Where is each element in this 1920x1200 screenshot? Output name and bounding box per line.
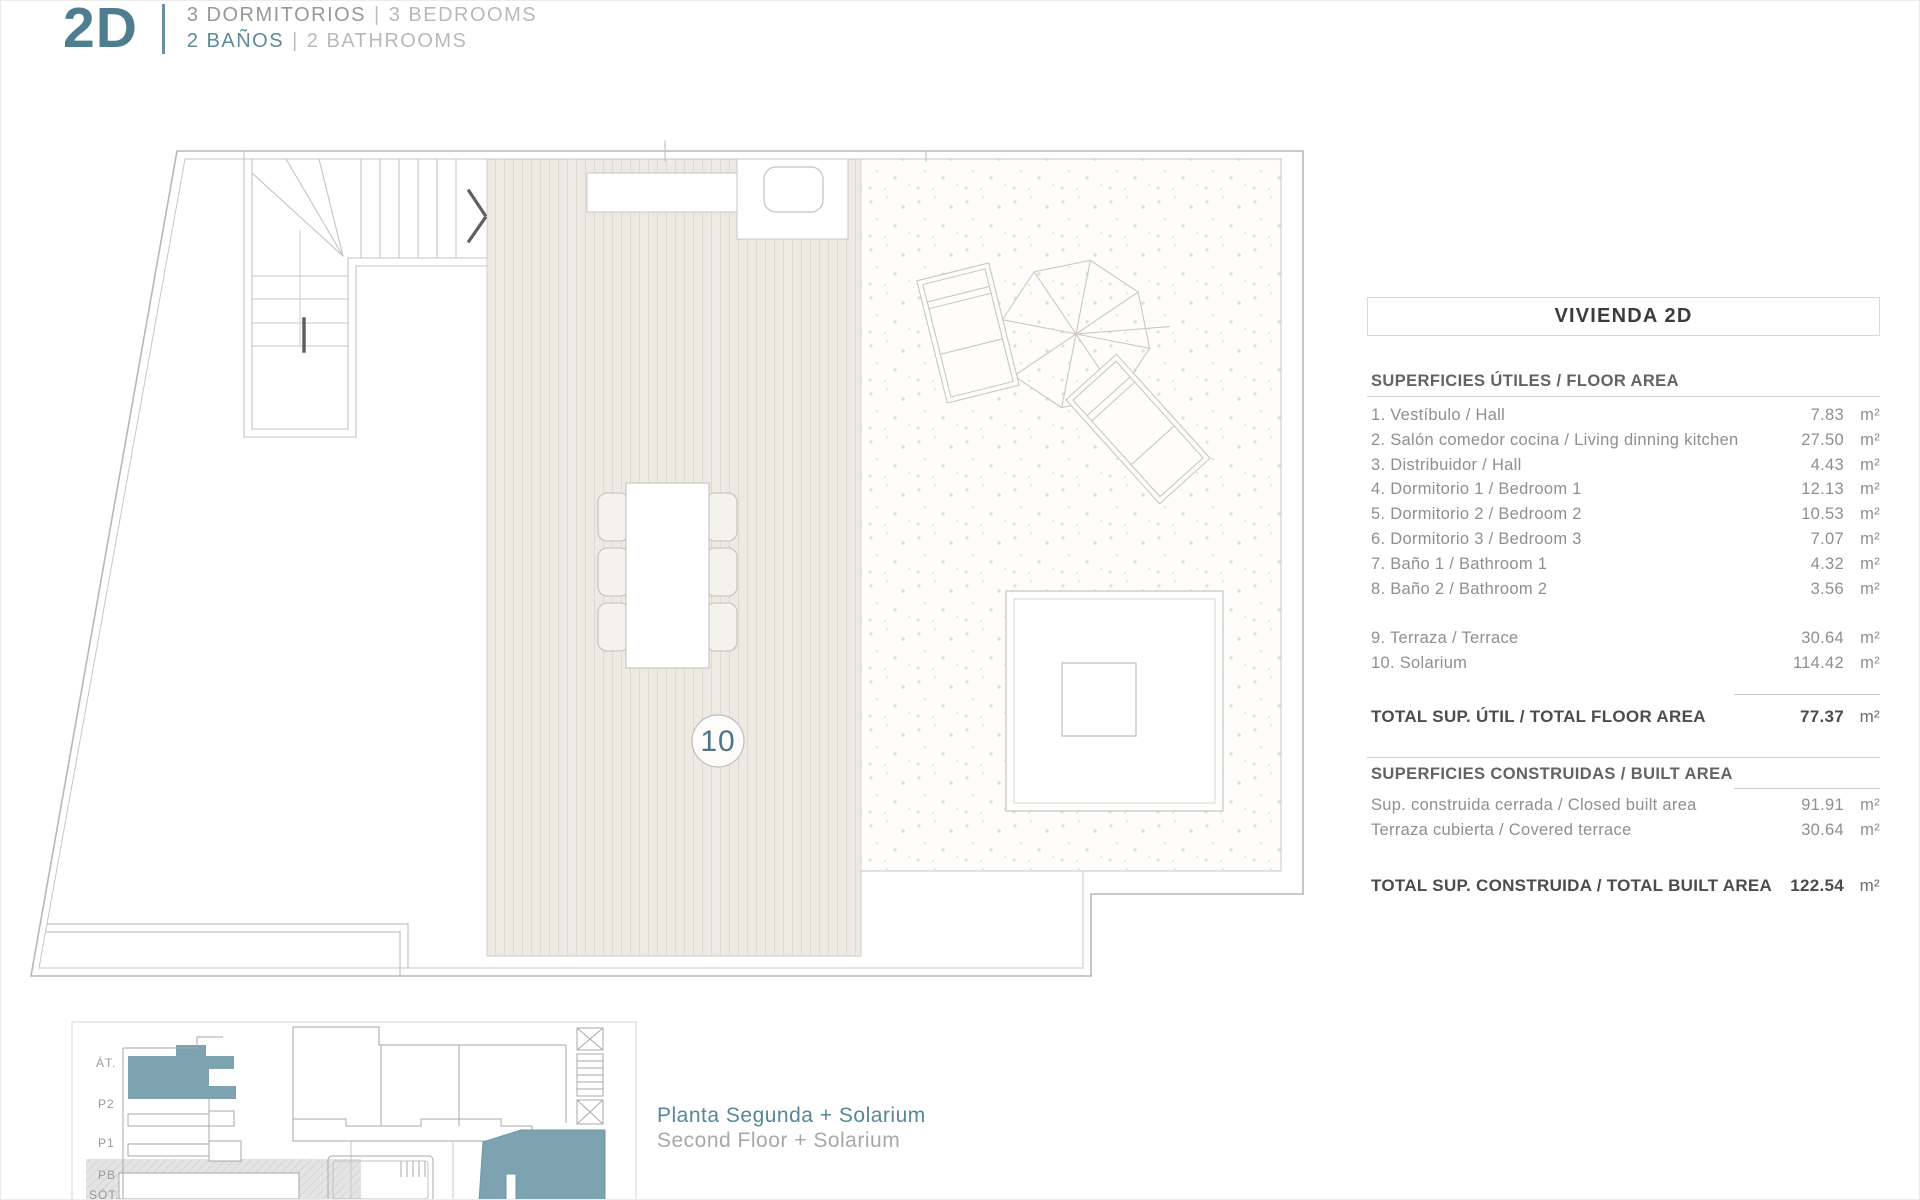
row-label: 9. Terraza / Terrace <box>1367 626 1774 651</box>
total-label: TOTAL SUP. ÚTIL / TOTAL FLOOR AREA <box>1367 707 1774 727</box>
caption-es: Planta Segunda + Solarium <box>657 1103 926 1128</box>
row-label: 6. Dormitorio 3 / Bedroom 3 <box>1367 527 1774 552</box>
room-number-badge: 10 <box>692 715 744 767</box>
row-unit: m² <box>1844 453 1880 478</box>
total-value: 122.54 <box>1774 876 1844 896</box>
row-unit: m² <box>1844 502 1880 527</box>
total-unit: m² <box>1844 707 1880 727</box>
built-area-total: TOTAL SUP. CONSTRUIDA / TOTAL BUILT AREA… <box>1367 876 1880 896</box>
row-label: 8. Baño 2 / Bathroom 2 <box>1367 577 1774 602</box>
table-row: 3. Distribuidor / Hall 4.43 m² <box>1367 453 1880 478</box>
table-row: 4. Dormitorio 1 / Bedroom 1 12.13 m² <box>1367 477 1880 502</box>
main-plan: 10 <box>31 141 1303 976</box>
area-table: VIVIENDA 2D SUPERFICIES ÚTILES / FLOOR A… <box>1367 297 1880 896</box>
sink-basin <box>764 167 823 212</box>
total-label: TOTAL SUP. CONSTRUIDA / TOTAL BUILT AREA <box>1367 876 1774 896</box>
bedrooms-label-es: 3 DORMITORIOS <box>187 4 366 26</box>
table-row: Sup. construida cerrada / Closed built a… <box>1367 793 1880 818</box>
bathrooms-label-en: 2 BATHROOMS <box>307 30 468 52</box>
built-area-section: SUPERFICIES CONSTRUIDAS / BUILT AREA Sup… <box>1367 757 1880 896</box>
row-label: 7. Baño 1 / Bathroom 1 <box>1367 552 1774 577</box>
row-label: Sup. construida cerrada / Closed built a… <box>1367 793 1774 818</box>
row-unit: m² <box>1844 651 1880 676</box>
row-value: 4.43 <box>1774 453 1844 478</box>
skylight <box>1006 591 1223 811</box>
row-unit: m² <box>1844 626 1880 651</box>
outdoor-rows: 9. Terraza / Terrace 30.64 m² 10. Solari… <box>1367 626 1880 676</box>
row-value: 27.50 <box>1774 428 1844 453</box>
row-unit: m² <box>1844 403 1880 428</box>
built-rule <box>1734 788 1880 789</box>
row-label: 3. Distribuidor / Hall <box>1367 453 1774 478</box>
row-value: 30.64 <box>1774 818 1844 843</box>
row-unit: m² <box>1844 818 1880 843</box>
row-value: 10.53 <box>1774 502 1844 527</box>
row-value: 3.56 <box>1774 577 1844 602</box>
row-unit: m² <box>1844 477 1880 502</box>
separator: | <box>284 30 307 52</box>
table-title: VIVIENDA 2D <box>1367 297 1880 336</box>
floor-label-p1: P1 <box>98 1136 115 1150</box>
built-area-header: SUPERFICIES CONSTRUIDAS / BUILT AREA <box>1367 765 1880 784</box>
bathrooms-line: 2 BAÑOS|2 BATHROOMS <box>187 28 537 54</box>
floor-label-pb: PB <box>98 1168 116 1182</box>
row-label: 5. Dormitorio 2 / Bedroom 2 <box>1367 502 1774 527</box>
table-row: 6. Dormitorio 3 / Bedroom 3 7.07 m² <box>1367 527 1880 552</box>
row-unit: m² <box>1844 577 1880 602</box>
separator: | <box>366 4 389 26</box>
row-value: 114.42 <box>1774 651 1844 676</box>
dining-table <box>626 483 709 668</box>
table-row: Terraza cubierta / Covered terrace 30.64… <box>1367 818 1880 843</box>
page: 10 <box>0 0 1920 1200</box>
floor-label-p2: P2 <box>98 1097 115 1111</box>
unit-type-logo: 2D <box>63 2 138 54</box>
stair-break-icon <box>469 191 485 241</box>
floor-area-header: SUPERFICIES ÚTILES / FLOOR AREA <box>1367 372 1880 397</box>
unit-highlight <box>479 1130 605 1200</box>
row-label: 10. Solarium <box>1367 651 1774 676</box>
row-value: 7.83 <box>1774 403 1844 428</box>
bedrooms-line: 3 DORMITORIOS|3 BEDROOMS <box>187 2 537 28</box>
row-value: 7.07 <box>1774 527 1844 552</box>
floor-label-sotano: SÓT. <box>89 1187 120 1200</box>
table-row: 2. Salón comedor cocina / Living dinning… <box>1367 428 1880 453</box>
table-row: 1. Vestíbulo / Hall 7.83 m² <box>1367 403 1880 428</box>
floor-label-atico: ÁT. <box>96 1055 116 1070</box>
row-label: 2. Salón comedor cocina / Living dinning… <box>1367 428 1774 453</box>
total-unit: m² <box>1844 876 1880 896</box>
row-unit: m² <box>1844 428 1880 453</box>
room-number-label: 10 <box>700 725 735 758</box>
floor-area-rows: 1. Vestíbulo / Hall 7.83 m² 2. Salón com… <box>1367 403 1880 601</box>
total-rule <box>1734 694 1880 695</box>
floor-area-total: TOTAL SUP. ÚTIL / TOTAL FLOOR AREA 77.37… <box>1367 707 1880 727</box>
row-value: 4.32 <box>1774 552 1844 577</box>
row-label: 4. Dormitorio 1 / Bedroom 1 <box>1367 477 1774 502</box>
row-value: 91.91 <box>1774 793 1844 818</box>
row-value: 12.13 <box>1774 477 1844 502</box>
bedrooms-label-en: 3 BEDROOMS <box>389 4 537 26</box>
table-row: 5. Dormitorio 2 / Bedroom 2 10.53 m² <box>1367 502 1880 527</box>
key-diagrams: ÁT. P2 P1 PB SÓT. <box>72 1022 636 1200</box>
table-row: 7. Baño 1 / Bathroom 1 4.32 m² <box>1367 552 1880 577</box>
header-specs: 3 DORMITORIOS|3 BEDROOMS 2 BAÑOS|2 BATHR… <box>187 1 537 54</box>
header: 2D 3 DORMITORIOS|3 BEDROOMS 2 BAÑOS|2 BA… <box>63 1 537 54</box>
row-unit: m² <box>1844 552 1880 577</box>
table-row: 10. Solarium 114.42 m² <box>1367 651 1880 676</box>
built-area-rows: Sup. construida cerrada / Closed built a… <box>1367 793 1880 843</box>
row-unit: m² <box>1844 527 1880 552</box>
total-value: 77.37 <box>1774 707 1844 727</box>
row-value: 30.64 <box>1774 626 1844 651</box>
table-row: 8. Baño 2 / Bathroom 2 3.56 m² <box>1367 577 1880 602</box>
bathrooms-label-es: 2 BAÑOS <box>187 30 284 52</box>
row-unit: m² <box>1844 793 1880 818</box>
header-divider <box>162 4 165 54</box>
row-label: Terraza cubierta / Covered terrace <box>1367 818 1774 843</box>
row-label: 1. Vestíbulo / Hall <box>1367 403 1774 428</box>
plan-caption: Planta Segunda + Solarium Second Floor +… <box>657 1103 926 1153</box>
stairs <box>244 151 487 437</box>
table-row: 9. Terraza / Terrace 30.64 m² <box>1367 626 1880 651</box>
dining-set <box>598 483 737 668</box>
caption-en: Second Floor + Solarium <box>657 1128 926 1153</box>
